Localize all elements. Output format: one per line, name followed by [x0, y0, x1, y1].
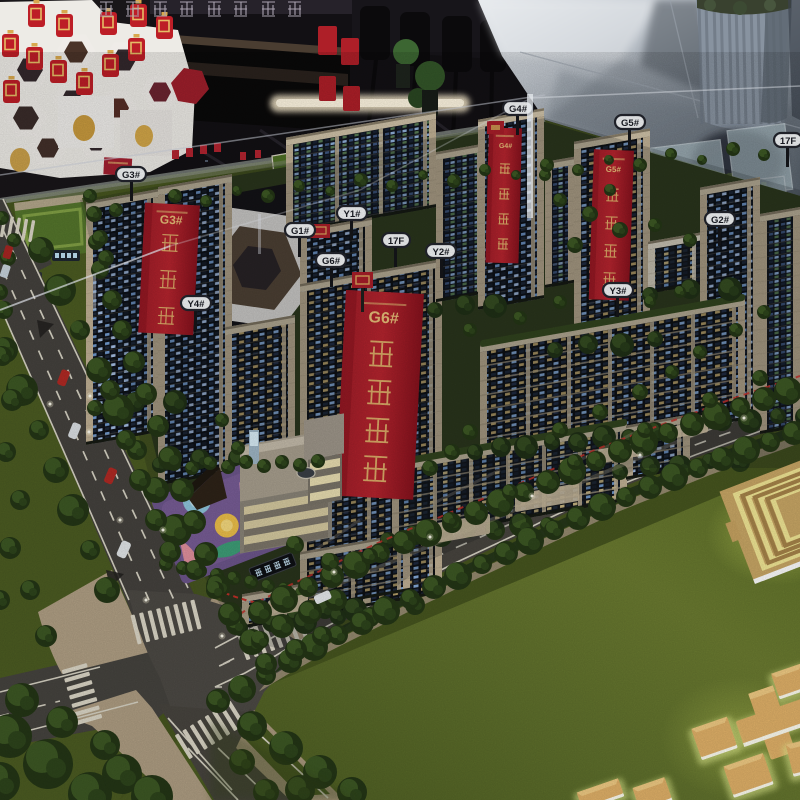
svg-text:17F: 17F — [780, 136, 797, 147]
svg-text:G5#: G5# — [621, 118, 640, 129]
svg-text:G3#: G3# — [122, 170, 141, 181]
